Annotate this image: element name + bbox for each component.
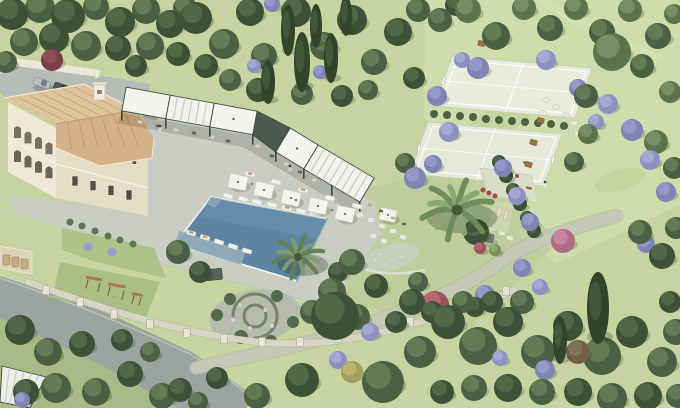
aerial-render-stage: Aerial 3D render of a Mediterranean vill…: [0, 0, 680, 408]
aerial-render-image: Aerial 3D render of a Mediterranean vill…: [0, 0, 680, 408]
